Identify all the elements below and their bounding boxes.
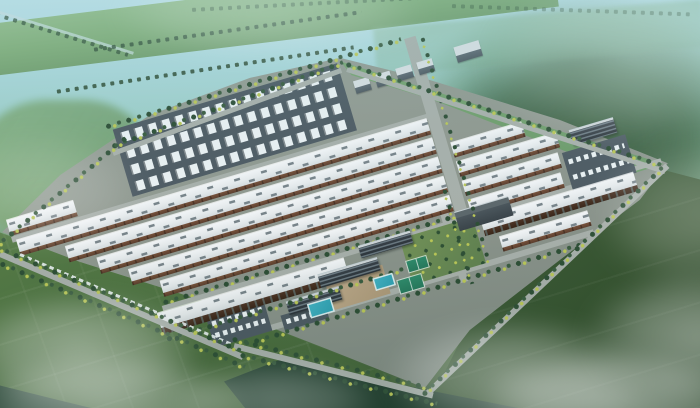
- color-tint: [0, 0, 700, 408]
- factory-campus-aerial-rendering: [0, 0, 700, 408]
- foreground-layer: [0, 0, 700, 408]
